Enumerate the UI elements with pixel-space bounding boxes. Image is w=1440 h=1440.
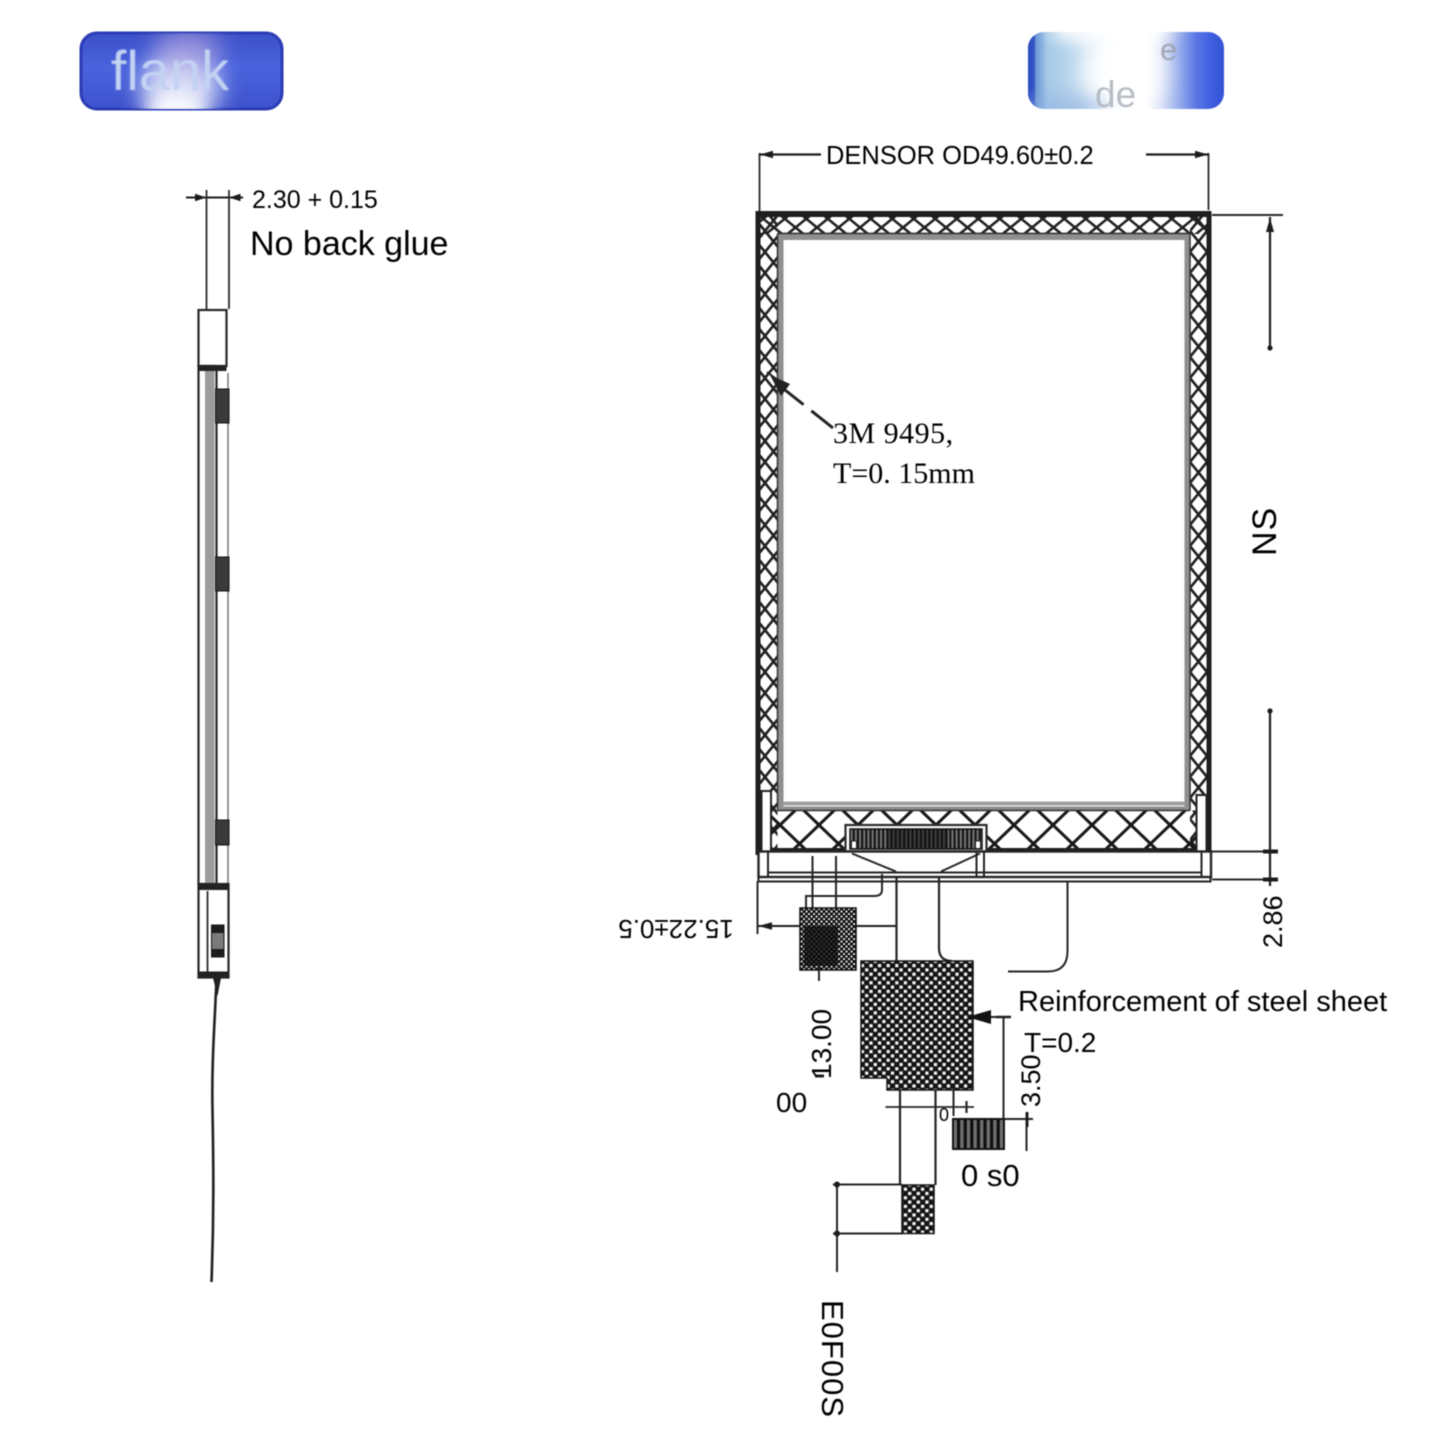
svg-text:de: de (1095, 74, 1136, 115)
svg-text:flank: flank (111, 39, 230, 102)
svg-text:T=0.2: T=0.2 (1024, 1027, 1096, 1058)
svg-text:T=0. 15mm: T=0. 15mm (833, 457, 975, 490)
svg-text:NS: NS (1246, 507, 1284, 556)
svg-text:2.30 + 0.15: 2.30 + 0.15 (252, 186, 378, 214)
svg-text:3M 9495,: 3M 9495, (833, 417, 954, 450)
svg-text:3.50: 3.50 (1016, 1054, 1046, 1107)
svg-text:No back glue: No back glue (250, 225, 448, 263)
svg-text:E0F00S: E0F00S (815, 1300, 850, 1418)
svg-text:DENSOR OD49.60±0.2: DENSOR OD49.60±0.2 (826, 142, 1094, 170)
svg-text:13.00: 13.00 (806, 1009, 837, 1079)
svg-text:15.22±0.5: 15.22±0.5 (618, 914, 733, 944)
svg-text:0 s0: 0 s0 (961, 1158, 1020, 1193)
svg-text:0: 0 (939, 1105, 949, 1125)
svg-text:2.86: 2.86 (1258, 895, 1288, 948)
svg-text:Reinforcement of steel sheet: Reinforcement of steel sheet (1018, 986, 1387, 1018)
svg-text:e: e (1160, 32, 1177, 67)
svg-text:00: 00 (776, 1087, 807, 1118)
